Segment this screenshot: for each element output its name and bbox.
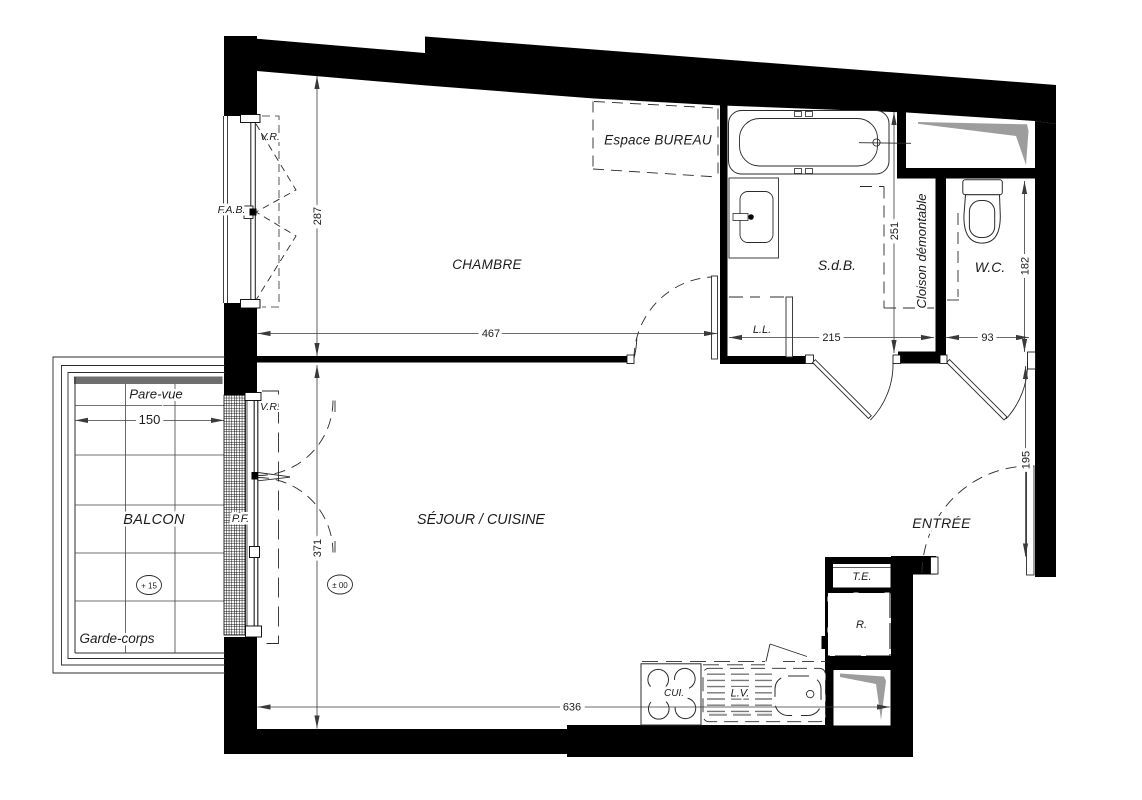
svg-text:636: 636 [563, 702, 581, 714]
svg-text:Garde-corps: Garde-corps [79, 631, 154, 646]
svg-text:± 00: ± 00 [332, 581, 348, 590]
svg-text:Pare-vue: Pare-vue [129, 387, 183, 402]
svg-text:V.R.: V.R. [260, 131, 280, 143]
svg-text:CHAMBRE: CHAMBRE [452, 257, 522, 272]
svg-text:371: 371 [312, 539, 324, 557]
svg-text:467: 467 [482, 328, 500, 340]
svg-text:150: 150 [139, 412, 161, 427]
svg-text:+ 15: + 15 [141, 582, 157, 591]
svg-text:182: 182 [1019, 257, 1031, 275]
svg-text:Espace BUREAU: Espace BUREAU [604, 133, 712, 148]
svg-text:F.A.B.: F.A.B. [218, 204, 246, 216]
svg-text:287: 287 [312, 207, 324, 225]
svg-text:T.E.: T.E. [852, 571, 871, 583]
svg-text:ENTRÉE: ENTRÉE [912, 515, 971, 531]
svg-text:R.: R. [856, 619, 867, 631]
svg-text:SÉJOUR / CUISINE: SÉJOUR / CUISINE [417, 511, 545, 528]
svg-text:215: 215 [822, 332, 840, 344]
svg-text:P.F.: P.F. [232, 513, 249, 525]
svg-text:BALCON: BALCON [123, 512, 185, 528]
svg-text:93: 93 [981, 332, 993, 344]
svg-text:195: 195 [1020, 451, 1032, 469]
svg-text:251: 251 [889, 222, 901, 240]
svg-text:L.V.: L.V. [731, 688, 750, 700]
svg-text:Cloison démontable: Cloison démontable [914, 194, 929, 309]
svg-text:W.C.: W.C. [975, 259, 1006, 275]
svg-text:S.d.B.: S.d.B. [818, 257, 856, 273]
svg-text:L.L.: L.L. [753, 324, 771, 336]
svg-text:CUI.: CUI. [664, 688, 684, 699]
svg-text:V.R.: V.R. [260, 401, 280, 413]
